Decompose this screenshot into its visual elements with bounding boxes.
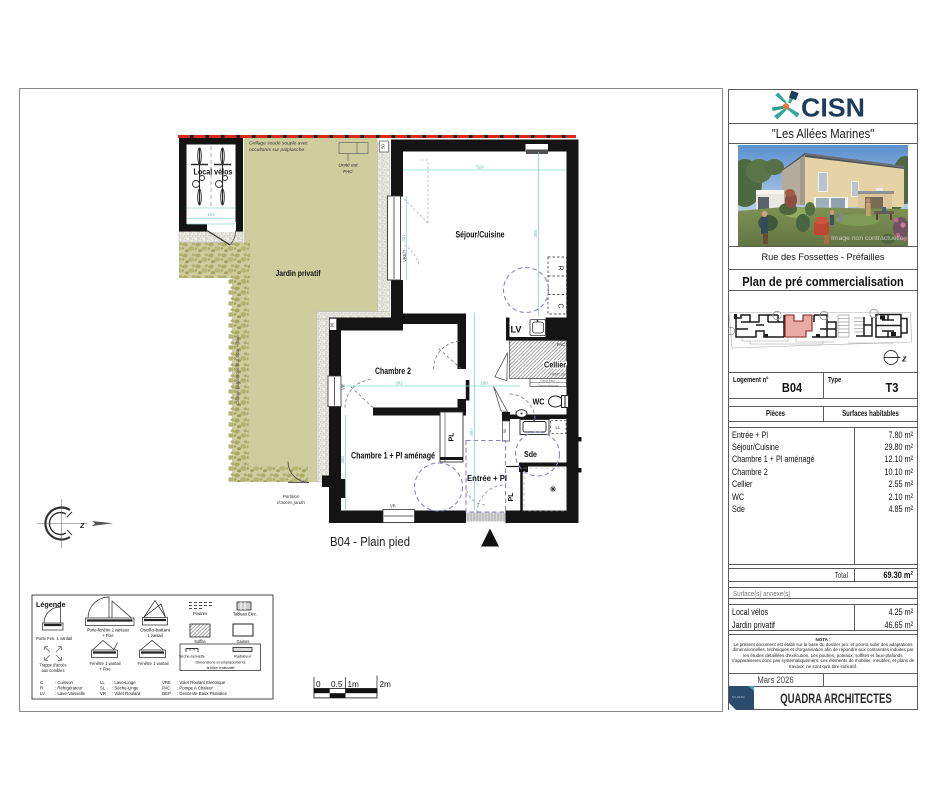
svg-text:PAC: PAC bbox=[557, 342, 566, 347]
svg-text:HSFP: 2m: HSFP: 2m bbox=[550, 373, 566, 377]
svg-text:PAC: PAC bbox=[162, 686, 171, 691]
svg-text:Séjour/Cuisine: Séjour/Cuisine bbox=[456, 230, 505, 241]
svg-text:Sèche-serviette: Sèche-serviette bbox=[179, 655, 205, 659]
svg-text:à titre indicatif: à titre indicatif bbox=[207, 665, 236, 670]
svg-text:LV: LV bbox=[511, 325, 522, 335]
svg-text:Chambre 1 + Pl aménagé: Chambre 1 + Pl aménagé bbox=[351, 451, 435, 461]
svg-text:321: 321 bbox=[401, 234, 406, 242]
svg-text:: Descente Eaux Pluviales: : Descente Eaux Pluviales bbox=[177, 691, 227, 696]
svg-text:0: 0 bbox=[316, 680, 321, 689]
svg-text:Tableau Elec.: Tableau Elec. bbox=[233, 612, 257, 617]
svg-text:Clôture palplanche ht 2,00m +: Clôture palplanche ht 2,00m + haie bbox=[235, 335, 240, 405]
svg-text:Chambre 2: Chambre 2 bbox=[375, 366, 411, 376]
svg-text:: Volet Roulant: : Volet Roulant bbox=[112, 691, 141, 696]
svg-text:WC: WC bbox=[533, 397, 545, 407]
svg-text:VR: VR bbox=[390, 504, 396, 509]
svg-text:B04 - Plain pied: B04 - Plain pied bbox=[330, 534, 410, 549]
svg-text:90: 90 bbox=[330, 322, 335, 327]
svg-text:: Lave-Vaisselle: : Lave-Vaisselle bbox=[55, 691, 86, 696]
svg-text:Sde: Sde bbox=[524, 449, 537, 459]
svg-text:358: 358 bbox=[533, 230, 538, 238]
svg-text:R: R bbox=[557, 265, 564, 270]
svg-text:100: 100 bbox=[480, 381, 488, 386]
svg-text:+ Fixe: + Fixe bbox=[102, 633, 114, 638]
svg-text:z: z bbox=[901, 354, 907, 364]
svg-text:LL: LL bbox=[556, 425, 561, 430]
svg-text:PL: PL bbox=[508, 492, 515, 502]
svg-text:Trappe d'accès: Trappe d'accès bbox=[40, 663, 67, 668]
svg-text:Fenêtre 1 vantail: Fenêtre 1 vantail bbox=[90, 661, 121, 666]
svg-text:0.5: 0.5 bbox=[331, 680, 343, 689]
svg-text:R: R bbox=[40, 686, 43, 691]
svg-text:50: 50 bbox=[381, 144, 386, 149]
svg-text:524: 524 bbox=[476, 165, 484, 170]
svg-text:C: C bbox=[40, 680, 43, 685]
svg-text:Oscillo-battant: Oscillo-battant bbox=[140, 628, 171, 633]
svg-text:Chevet ventouse: Chevet ventouse bbox=[538, 383, 559, 387]
svg-text:CISN: CISN bbox=[801, 93, 865, 123]
svg-text:occultants sur palplanche: occultants sur palplanche bbox=[249, 147, 304, 153]
svg-text:LL: LL bbox=[100, 680, 105, 685]
svg-text:Image non contractuelle: Image non contractuelle bbox=[831, 235, 904, 242]
svg-text:Poutres: Poutres bbox=[193, 611, 207, 616]
svg-text:2m: 2m bbox=[380, 680, 392, 689]
svg-text:PAC: PAC bbox=[343, 169, 353, 175]
svg-text:697: 697 bbox=[469, 428, 474, 436]
svg-text:: Cuisson: : Cuisson bbox=[55, 680, 74, 685]
svg-text:Dimensions et emplacements: Dimensions et emplacements bbox=[196, 660, 246, 665]
svg-text:Fenêtre 1 vantail: Fenêtre 1 vantail bbox=[138, 661, 169, 666]
svg-text:: Sèche-Linge: : Sèche-Linge bbox=[112, 686, 139, 691]
svg-text:aux combles: aux combles bbox=[42, 668, 65, 673]
svg-text:Entrée + Pl: Entrée + Pl bbox=[467, 474, 507, 483]
svg-text:: Réfrigérateur: : Réfrigérateur bbox=[55, 686, 83, 691]
svg-text:d'accès jardin: d'accès jardin bbox=[277, 500, 305, 505]
svg-text:LV: LV bbox=[40, 691, 45, 696]
svg-text:90: 90 bbox=[503, 429, 507, 433]
svg-text:Gaine élect.: Gaine élect. bbox=[541, 379, 556, 383]
svg-text:Gaines: Gaines bbox=[237, 639, 250, 644]
svg-text:Soffite: Soffite bbox=[194, 639, 206, 644]
svg-text:SL: SL bbox=[100, 686, 106, 691]
svg-text:VRE: VRE bbox=[162, 680, 171, 685]
svg-text:Porte-fenêtre 2 vantaux: Porte-fenêtre 2 vantaux bbox=[87, 628, 129, 633]
svg-text:Radiateur: Radiateur bbox=[234, 655, 252, 659]
svg-text:z: z bbox=[79, 520, 85, 530]
svg-text:C: C bbox=[557, 303, 564, 308]
svg-text:+ Fixe: + Fixe bbox=[99, 667, 111, 672]
svg-text:Cellier: Cellier bbox=[544, 360, 567, 370]
svg-text:Partition: Partition bbox=[283, 494, 300, 499]
svg-text:Local vélos: Local vélos bbox=[194, 167, 233, 177]
svg-text:Grillage soudé souple avec: Grillage soudé souple avec bbox=[249, 141, 309, 147]
svg-text:: Volet Roulant Electrique: : Volet Roulant Electrique bbox=[177, 680, 226, 685]
svg-text:Légende: Légende bbox=[36, 600, 66, 609]
svg-text:1m: 1m bbox=[348, 680, 360, 689]
svg-text:PL: PL bbox=[449, 432, 456, 442]
svg-text:1 vantail: 1 vantail bbox=[147, 633, 162, 638]
svg-text:Porte Fen. 1 vantail: Porte Fen. 1 vantail bbox=[36, 636, 72, 641]
svg-text:Jardin privatif: Jardin privatif bbox=[276, 269, 321, 278]
svg-text:VR: VR bbox=[100, 691, 106, 696]
svg-text:360: 360 bbox=[340, 456, 345, 464]
svg-text:: Pompe A Chaleur: : Pompe A Chaleur bbox=[177, 686, 213, 691]
svg-text:391: 391 bbox=[395, 381, 403, 386]
svg-text:: Lave-Linge: : Lave-Linge bbox=[112, 680, 136, 685]
svg-text:Unité ext: Unité ext bbox=[338, 163, 358, 169]
svg-text:DEP: DEP bbox=[162, 691, 171, 696]
svg-text:156: 156 bbox=[207, 212, 215, 217]
svg-text:Q U A D R A: Q U A D R A bbox=[732, 696, 745, 699]
svg-text:VR: VR bbox=[341, 384, 346, 390]
